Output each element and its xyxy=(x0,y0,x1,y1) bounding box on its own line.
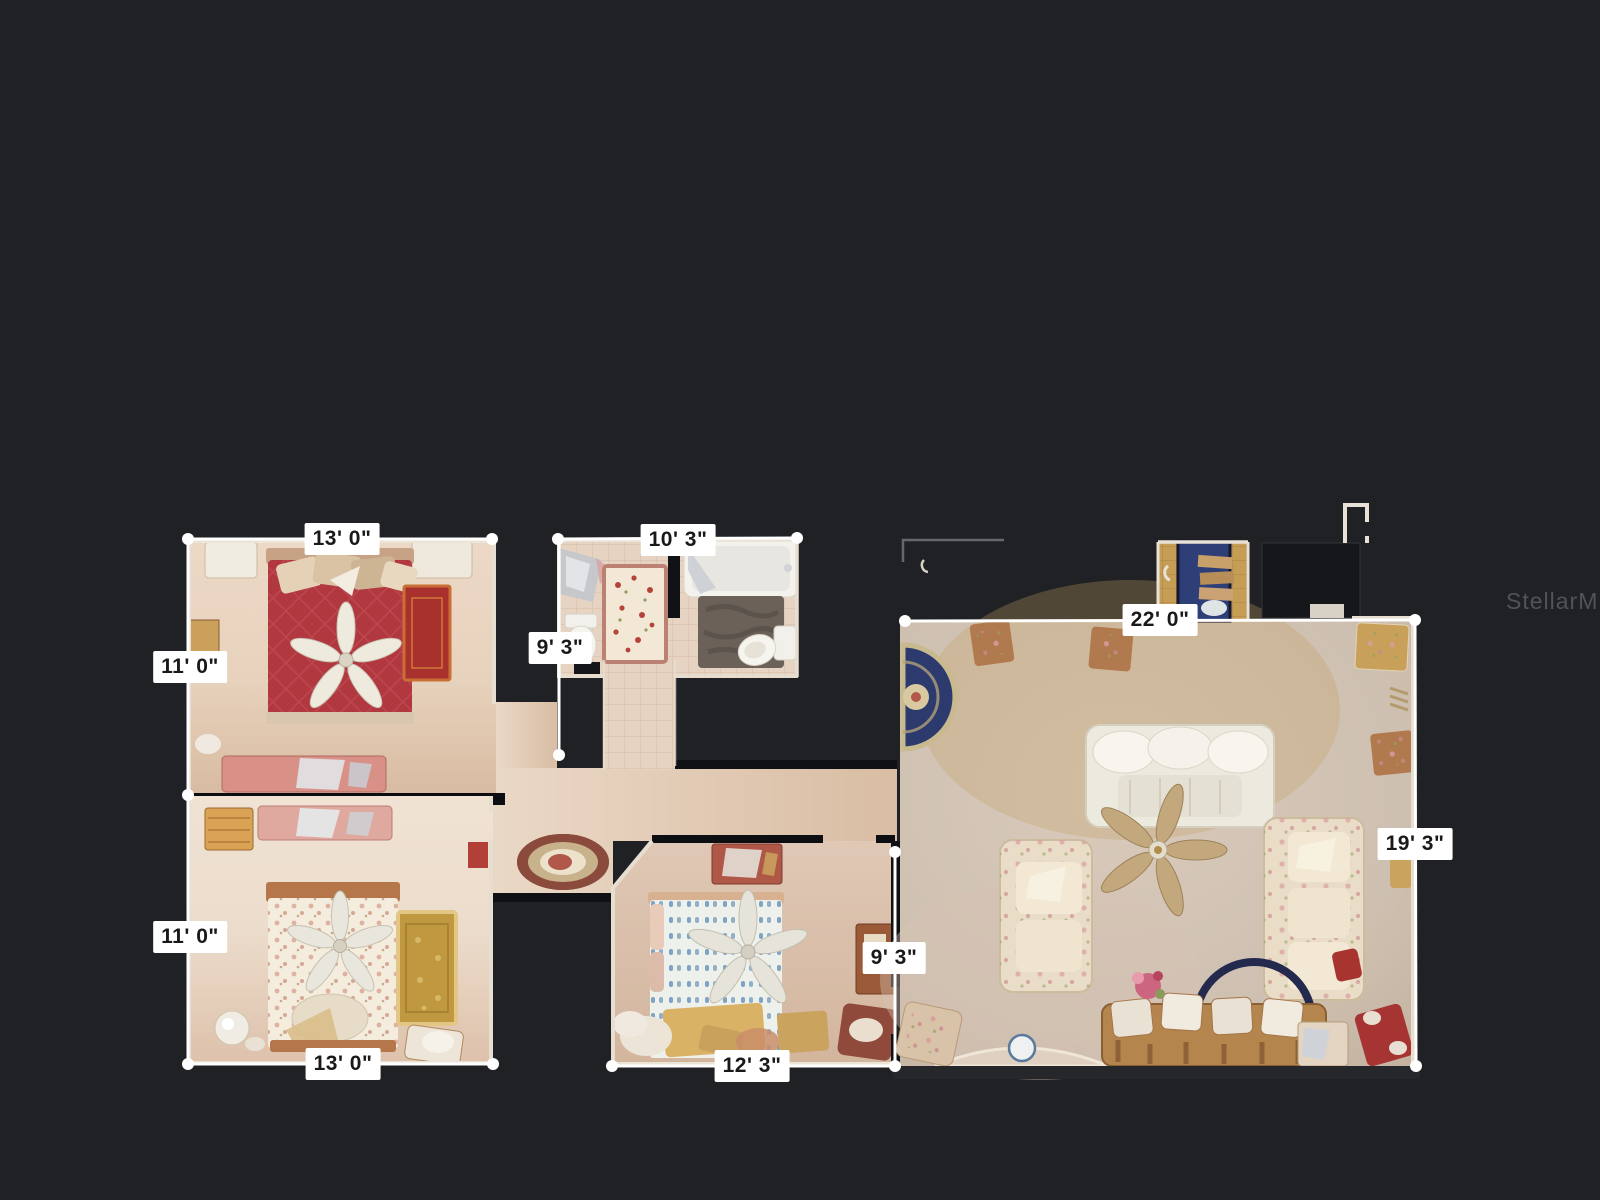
hall-oval-rug xyxy=(517,834,609,890)
dresser xyxy=(258,806,392,840)
vanity-desk xyxy=(1298,1022,1348,1066)
dimension-label: 13' 0" xyxy=(306,1048,381,1080)
dimension-label: 10' 3" xyxy=(641,524,716,556)
pet-bed xyxy=(613,1011,647,1037)
wall-piece xyxy=(1310,604,1344,618)
side-chair xyxy=(468,842,488,868)
floral-bath-rug xyxy=(604,566,666,662)
room-bedroom-middle xyxy=(613,835,902,1066)
door-swing xyxy=(922,560,928,572)
nightstand xyxy=(412,540,472,578)
basket xyxy=(205,808,253,850)
dining-set xyxy=(1102,962,1326,1066)
dimension-label: 13' 0" xyxy=(305,523,380,555)
dimension-label: 9' 3" xyxy=(863,942,926,974)
gold-area-rug xyxy=(398,912,456,1024)
sofa-floral xyxy=(1264,818,1364,1000)
wall-dark xyxy=(893,1066,1420,1079)
corner-armchair xyxy=(895,1001,963,1068)
nightstand xyxy=(205,542,257,578)
round-platter xyxy=(1009,1035,1035,1061)
bench xyxy=(777,1010,830,1053)
hall-floor-upper xyxy=(496,702,557,770)
dimension-label: 11' 0" xyxy=(153,651,227,683)
floorplan-image: 13' 0" 11' 0" 10' 3" 9' 3" 22' 0" 19' 3"… xyxy=(0,0,1600,1200)
red-area-rug xyxy=(404,586,450,680)
room-bathroom xyxy=(555,540,798,770)
chair xyxy=(404,1024,464,1065)
wall-dark xyxy=(652,835,823,843)
side-chair-cushion xyxy=(976,628,1005,657)
room-living xyxy=(880,505,1420,1080)
dimension-label: 22' 0" xyxy=(1123,604,1198,636)
side-table xyxy=(1390,856,1412,888)
dresser xyxy=(712,844,782,884)
floorplan-canvas xyxy=(0,0,1600,1200)
entry-nook-wall xyxy=(1345,505,1367,543)
watermark: StellarMLS xyxy=(1506,588,1600,615)
dimension-label: 11' 0" xyxy=(153,921,227,953)
hall-wall-bottom xyxy=(493,893,613,902)
room-bedroom-top-left xyxy=(187,539,505,805)
wall-divider xyxy=(668,552,680,618)
dimension-label: 19' 3" xyxy=(1378,828,1453,860)
loveseat-floral xyxy=(1000,840,1092,992)
lamp xyxy=(195,734,221,754)
porch-outline xyxy=(903,540,1004,562)
room-bedroom-bottom-left xyxy=(188,796,493,1066)
side-chair-cushion xyxy=(1095,633,1125,663)
dimension-label: 12' 3" xyxy=(715,1050,790,1082)
dimension-label: 9' 3" xyxy=(529,632,592,664)
hall-wall-top xyxy=(675,760,897,769)
dresser xyxy=(222,756,386,792)
